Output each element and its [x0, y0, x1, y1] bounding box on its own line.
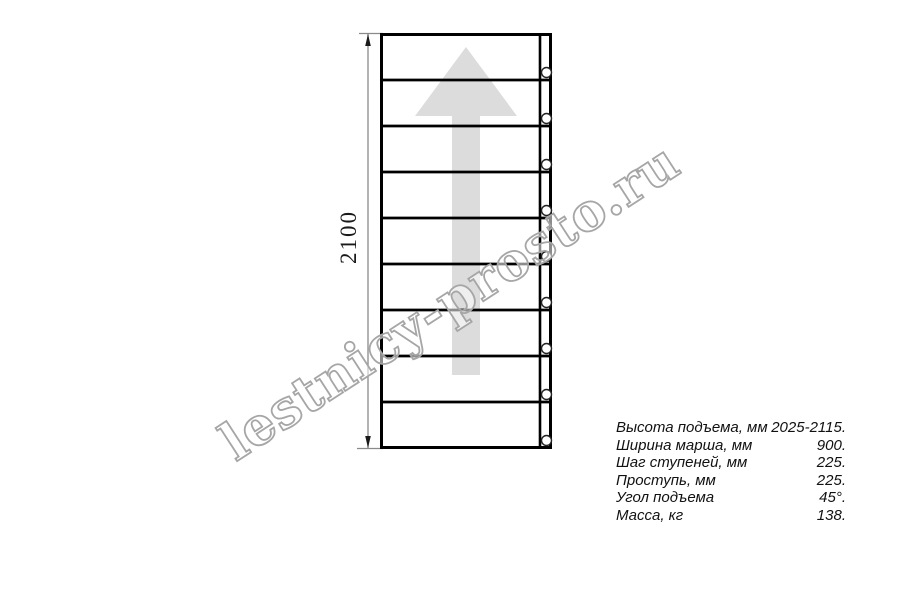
bolt-circle — [542, 68, 552, 78]
spec-value: 138. — [817, 507, 846, 525]
spec-label: Проступь, мм — [616, 472, 716, 490]
spec-row-angle: Угол подъема 45°. — [616, 489, 846, 507]
spec-label: Высота подъема, мм — [616, 419, 768, 437]
spec-label: Масса, кг — [616, 507, 683, 525]
spec-value: 225. — [817, 454, 846, 472]
spec-label: Угол подъема — [616, 489, 714, 507]
spec-value: 900. — [817, 437, 846, 455]
spec-row-mass: Масса, кг 138. — [616, 507, 846, 525]
spec-label: Шаг ступеней, мм — [616, 454, 747, 472]
dimension-arrow-bottom — [365, 436, 371, 448]
spec-value: 45°. — [819, 489, 846, 507]
spec-row-step-pitch: Шаг ступеней, мм 225. — [616, 454, 846, 472]
spec-row-width: Ширина марша, мм 900. — [616, 437, 846, 455]
bolt-circle — [542, 252, 552, 262]
spec-value: 225. — [817, 472, 846, 490]
bolt-circle — [542, 344, 552, 354]
bolt-circle — [542, 298, 552, 308]
spec-row-tread: Проступь, мм 225. — [616, 472, 846, 490]
stair-drawing-page: 2100 Высота подъема, мм 2025-2115. Ширин… — [0, 0, 900, 600]
dimension-arrow-top — [365, 34, 371, 46]
specs-list: Высота подъема, мм 2025-2115. Ширина мар… — [616, 419, 846, 525]
spec-value: 2025-2115. — [771, 419, 846, 437]
spec-label: Ширина марша, мм — [616, 437, 752, 455]
bolt-circle — [542, 160, 552, 170]
bolt-circle — [542, 390, 552, 400]
bolt-circle — [542, 436, 552, 446]
direction-up-arrow — [415, 47, 517, 375]
dimension-label: 2100 — [336, 210, 362, 264]
spec-row-height: Высота подъема, мм 2025-2115. — [616, 419, 846, 437]
bolt-circle — [542, 206, 552, 216]
bolt-circle — [542, 114, 552, 124]
